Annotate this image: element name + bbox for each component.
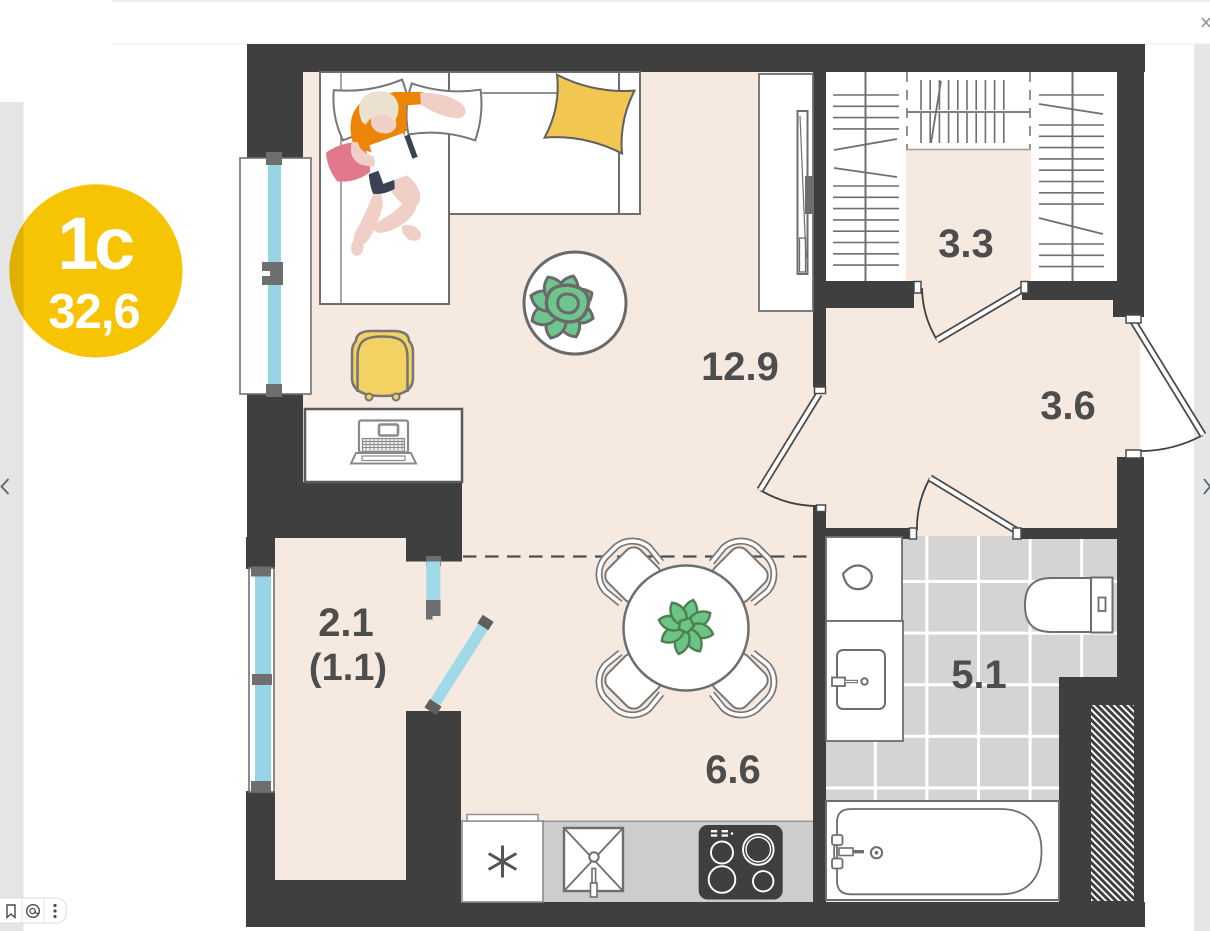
svg-text:6.6: 6.6 [705, 748, 761, 792]
svg-text:1с: 1с [57, 202, 133, 285]
svg-text:2.1: 2.1 [318, 601, 374, 645]
svg-text:5.1: 5.1 [951, 653, 1007, 697]
svg-text:3.6: 3.6 [1040, 384, 1096, 428]
svg-text:32,6: 32,6 [48, 285, 139, 339]
svg-text:3.3: 3.3 [938, 222, 994, 266]
svg-text:12.9: 12.9 [701, 345, 779, 389]
svg-text:(1.1): (1.1) [309, 647, 387, 689]
